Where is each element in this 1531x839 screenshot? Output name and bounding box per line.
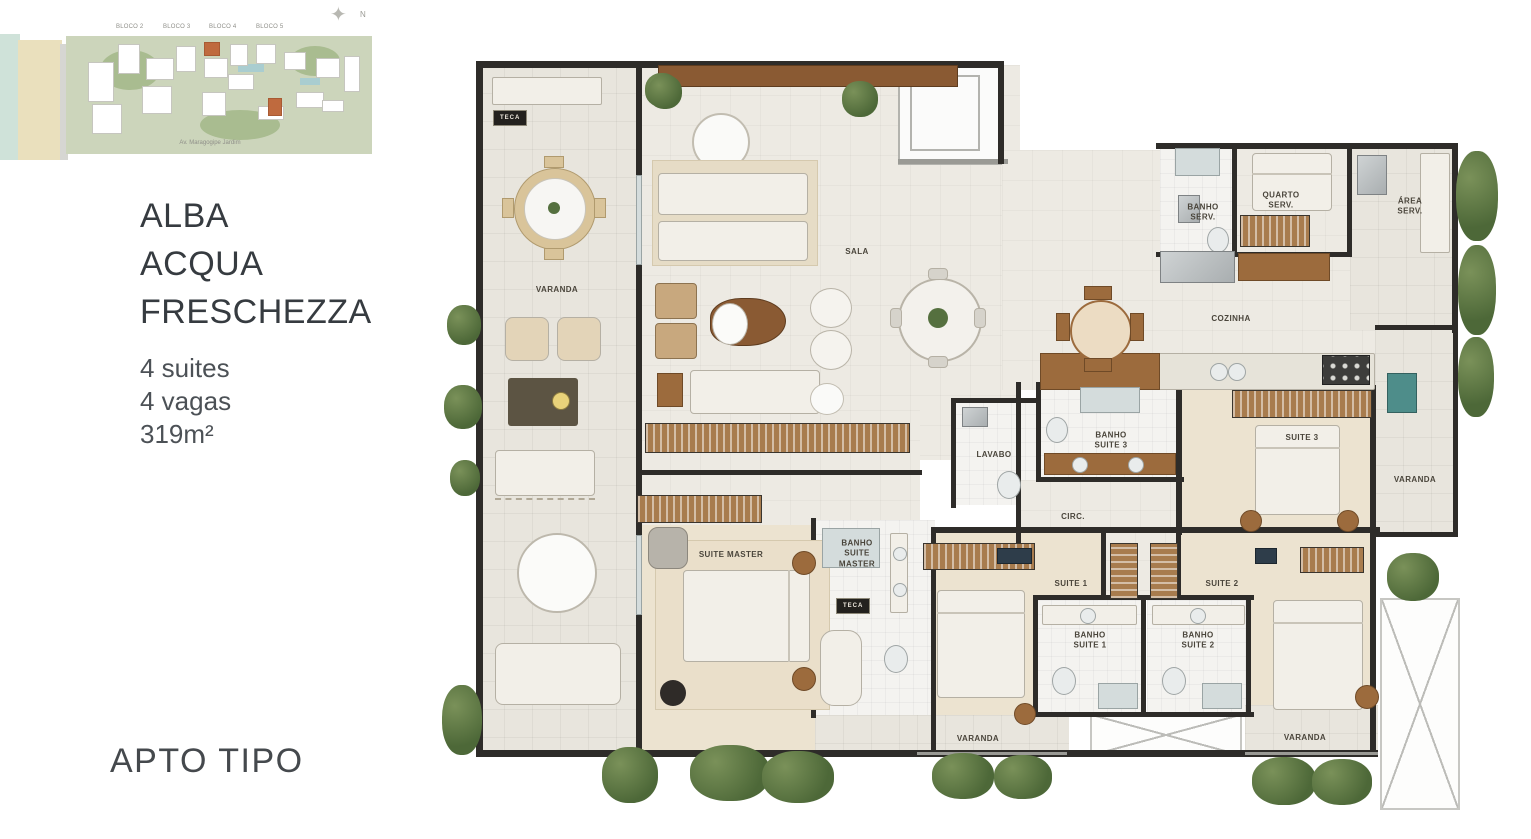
breakfast-chair [1084, 358, 1112, 372]
building [118, 44, 140, 74]
pouf [1014, 703, 1036, 725]
bushes [994, 755, 1052, 799]
stove [1322, 355, 1370, 385]
service-wardrobe [1240, 215, 1310, 247]
terrace-centerpiece-plant [548, 202, 560, 214]
floor-lamp [552, 392, 570, 410]
master-closet-wardrobe [637, 495, 762, 523]
wall [1141, 595, 1146, 717]
breakfast-table [1070, 300, 1132, 362]
dining-chair [928, 356, 948, 368]
room-label-suite-master: SUITE MASTER [699, 550, 763, 560]
armchair [655, 283, 697, 319]
room-label-banho-suite-master: BANHO SUITE MASTER [839, 538, 875, 569]
master-basin [893, 547, 907, 561]
room-label-circ: CIRC. [1061, 512, 1085, 522]
nightstand [792, 551, 816, 575]
title-line-3: FRESCHEZZA [140, 288, 372, 336]
bed-line [1255, 447, 1340, 449]
bed-line [1252, 173, 1332, 175]
wall [931, 527, 1380, 533]
wall [1375, 532, 1458, 537]
room-label-suite-1: SUITE 1 [1054, 579, 1087, 589]
laundry-counter [1420, 153, 1450, 253]
bath2-toilet [1162, 667, 1186, 695]
room-label-area-serv: ÁREA SERV. [1397, 197, 1422, 218]
suite2-tv [1255, 548, 1277, 564]
room-label-suite-3: SUITE 3 [1285, 433, 1318, 443]
apartment-type-label: APTO TIPO [110, 742, 304, 781]
bath2-basin [1190, 608, 1206, 624]
void-shaft [1380, 598, 1460, 810]
bath3-toilet [1046, 417, 1068, 443]
bushes [690, 745, 770, 801]
bushes [762, 751, 834, 803]
dining-chair [974, 308, 986, 328]
closet-wardrobe [1110, 543, 1138, 599]
terrace-chair [594, 198, 606, 218]
hedge [1456, 151, 1498, 241]
kitchen-cabinet [1238, 253, 1330, 281]
building [204, 58, 228, 78]
lavabo-toilet [997, 471, 1021, 499]
building [176, 46, 196, 72]
building [202, 92, 226, 116]
wall [951, 398, 1041, 403]
room-label-cozinha: COZINHA [1211, 314, 1250, 324]
bath1-shower [1098, 683, 1138, 709]
wall [636, 470, 922, 475]
terrace-sofa [495, 643, 621, 705]
room-label-banho-suite-2: BANHO SUITE 2 [1181, 631, 1214, 652]
teca-tag: TECA [493, 110, 527, 126]
room-label-varanda-bottom-center: VARANDA [957, 734, 999, 744]
breakfast-chair [1130, 313, 1144, 341]
pouf [660, 680, 686, 706]
armchair [655, 323, 697, 359]
beach-sand [18, 40, 62, 160]
room-label-banho-suite-3: BANHO SUITE 3 [1094, 431, 1127, 452]
terrace-chair [544, 156, 564, 168]
highlighted-building [204, 42, 220, 56]
spec-vagas: 4 vagas [140, 385, 231, 418]
desk-chair [712, 303, 748, 345]
hedge [1458, 245, 1496, 335]
project-title: ALBA ACQUA FRESCHEZZA [140, 192, 372, 336]
wall [1370, 535, 1376, 755]
suite2-bed [1273, 600, 1363, 710]
building [228, 74, 254, 90]
plant [444, 385, 482, 429]
wall [951, 398, 956, 508]
spec-area: 319m² [140, 418, 231, 451]
spec-suites: 4 suites [140, 352, 231, 385]
varanda-right-floor [1375, 325, 1458, 537]
bath3-vanity [1044, 453, 1176, 475]
plant [842, 81, 878, 117]
wall [1036, 477, 1184, 482]
service-toilet [1207, 227, 1229, 253]
building [296, 92, 324, 108]
hedge [1458, 337, 1494, 417]
grill-fixture [1387, 373, 1417, 413]
bath1-basin [1080, 608, 1096, 624]
wall [998, 61, 1004, 164]
breakfast-chair [1056, 313, 1070, 341]
title-line-2: ACQUA [140, 240, 372, 288]
dining-chair [890, 308, 902, 328]
round-lounger [517, 533, 597, 613]
daybed [495, 450, 595, 496]
master-basin [893, 583, 907, 597]
building [146, 58, 174, 80]
wall [1375, 325, 1458, 330]
daybed-rope [495, 498, 595, 500]
suite1-tv [997, 548, 1032, 564]
terrace-chair [544, 248, 564, 260]
room-label-varanda-left: VARANDA [536, 285, 578, 295]
kitchen-sink [1210, 363, 1228, 381]
room-label-lavabo: LAVABO [977, 450, 1012, 460]
bath3-basin [1128, 457, 1144, 473]
building [142, 86, 172, 114]
bed-line [788, 570, 790, 662]
plant [447, 305, 481, 345]
bushes [1252, 757, 1316, 805]
site-plan-map: ✦ N BLOCO 2BLOCO 3BLOCO 4BLOCO 5 Av. Mar… [0, 0, 385, 162]
wall [1016, 382, 1021, 545]
water-strip [0, 34, 20, 160]
wall [1033, 595, 1038, 717]
dining-centerpiece [928, 308, 948, 328]
wall [1033, 712, 1254, 717]
bloco-label: BLOCO 2 [116, 24, 143, 30]
bathtub [820, 630, 862, 706]
suite2-wardrobe [1300, 547, 1364, 573]
pouf [1355, 685, 1379, 709]
terrace-armchair [557, 317, 601, 361]
bath3-shower [1080, 387, 1140, 413]
bushes [602, 747, 658, 803]
bath3-basin [1072, 457, 1088, 473]
building [230, 44, 248, 66]
side-table [657, 373, 683, 407]
bloco-label: BLOCO 5 [256, 24, 283, 30]
highlighted-building [268, 98, 282, 116]
wall [1101, 527, 1106, 600]
sofa [658, 173, 808, 215]
plant [450, 460, 480, 496]
master-toilet [884, 645, 908, 673]
building [88, 62, 114, 102]
closet-wardrobe [1150, 543, 1178, 599]
compass-north-label: N [360, 10, 366, 19]
wall [1452, 143, 1458, 333]
unit-specs: 4 suites 4 vagas 319m² [140, 352, 231, 451]
bed-line [1273, 622, 1363, 624]
suite1-bed [937, 590, 1025, 698]
wall [636, 61, 642, 755]
room-label-quarto-serv: QUARTO SERV. [1263, 191, 1300, 212]
room-label-banho-suite-1: BANHO SUITE 1 [1073, 631, 1106, 652]
occasional-chair [810, 288, 852, 328]
bloco-label: BLOCO 3 [163, 24, 190, 30]
wall [1453, 325, 1458, 537]
room-label-varanda-bottom-right: VARANDA [1284, 733, 1326, 743]
plant [442, 685, 482, 755]
lavabo-sink [962, 407, 988, 427]
plant [1387, 553, 1439, 601]
sidebar: ✦ N BLOCO 2BLOCO 3BLOCO 4BLOCO 5 Av. Mar… [0, 0, 460, 839]
sofa [658, 221, 808, 261]
bath2-shower [1202, 683, 1242, 709]
room-label-sala: SALA [845, 247, 868, 257]
title-line-1: ALBA [140, 192, 372, 240]
dining-chair [928, 268, 948, 280]
tv-console [658, 65, 958, 87]
building [92, 104, 122, 134]
sliding-door [636, 535, 642, 615]
bushes [932, 753, 994, 799]
terrace-chair [502, 198, 514, 218]
master-vanity [890, 533, 908, 613]
bushes [1312, 759, 1372, 805]
bloco-label: BLOCO 4 [209, 24, 236, 30]
room-label-suite-2: SUITE 2 [1205, 579, 1238, 589]
wall [1176, 382, 1182, 535]
occasional-chair [810, 330, 852, 370]
building [316, 58, 340, 78]
window [917, 752, 1067, 755]
window [1245, 752, 1378, 755]
suite3-wardrobe [1232, 390, 1372, 418]
side-table-round [810, 383, 844, 415]
plant [648, 75, 682, 109]
wall [1347, 143, 1352, 257]
suite-master-bed [683, 570, 810, 662]
street-label: Av. Maragogipe Jardim [150, 140, 270, 146]
service-shower [1175, 148, 1220, 176]
building [322, 100, 344, 112]
laundry-tank [1357, 155, 1387, 195]
room-label-varanda-right: VARANDA [1394, 475, 1436, 485]
bed-line [937, 612, 1025, 614]
teca-tag: TECA [836, 598, 870, 614]
wall [1232, 143, 1237, 257]
bath1-toilet [1052, 667, 1076, 695]
master-closet-wardrobe [645, 423, 910, 453]
nightstand [1240, 510, 1262, 532]
nightstand [1337, 510, 1359, 532]
sofa [690, 370, 820, 414]
building [344, 56, 360, 92]
fridge-freezer [1160, 251, 1235, 283]
floor-plan: TECA TECA VARANDASALABANHO SERV.QUARTO S… [462, 55, 1467, 815]
room-label-banho-serv: BANHO SERV. [1187, 203, 1218, 224]
building [284, 52, 306, 70]
terrace-counter [492, 77, 602, 105]
wall [1036, 382, 1041, 482]
pool [300, 78, 320, 85]
compass-icon: ✦ [330, 2, 347, 27]
sliding-door [636, 175, 642, 265]
reading-armchair [648, 527, 688, 569]
terrace-armchair [505, 317, 549, 361]
kitchen-sink [1228, 363, 1246, 381]
breakfast-chair [1084, 286, 1112, 300]
nightstand [792, 667, 816, 691]
wall [1246, 595, 1251, 717]
hall-wall [898, 159, 1008, 164]
building [256, 44, 276, 64]
